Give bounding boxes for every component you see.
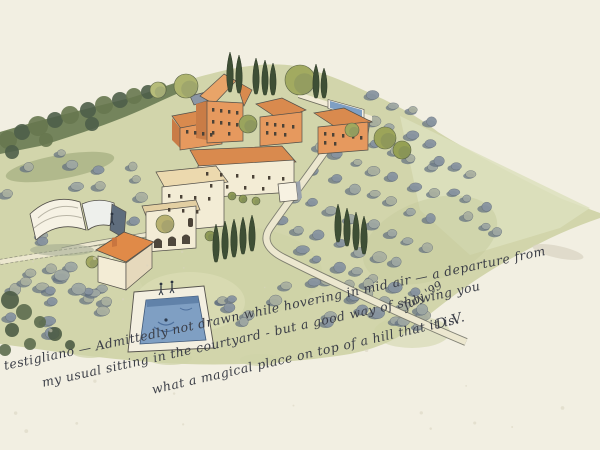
woods-tree bbox=[28, 116, 48, 136]
paper-speckle bbox=[511, 426, 513, 428]
chimney bbox=[112, 237, 117, 247]
woods-tree bbox=[85, 117, 99, 131]
window bbox=[282, 124, 284, 128]
tall-house-wall-shaded bbox=[196, 101, 207, 140]
round-tree bbox=[228, 192, 236, 200]
paper-speckle bbox=[473, 421, 476, 424]
window bbox=[236, 174, 238, 178]
window bbox=[244, 186, 246, 190]
round-tree bbox=[239, 195, 247, 203]
arch-opening bbox=[168, 237, 176, 247]
paper-speckle bbox=[173, 392, 175, 394]
woods-tree bbox=[5, 145, 19, 159]
window bbox=[332, 133, 334, 137]
window bbox=[342, 134, 344, 138]
paper-speckle bbox=[365, 349, 368, 352]
round-tree bbox=[150, 82, 166, 98]
green-fade-blob bbox=[240, 354, 280, 366]
window bbox=[180, 195, 182, 199]
woods-tree bbox=[47, 112, 63, 128]
paper-speckle bbox=[32, 260, 34, 262]
round-tree bbox=[174, 74, 198, 98]
paper-speckle bbox=[413, 305, 416, 308]
window bbox=[202, 132, 204, 136]
paper-speckle bbox=[93, 379, 96, 382]
window bbox=[228, 110, 230, 114]
window bbox=[284, 133, 286, 137]
window bbox=[194, 131, 196, 135]
bush bbox=[5, 323, 19, 337]
round-tree bbox=[156, 215, 174, 233]
paper-speckle bbox=[146, 264, 148, 266]
window bbox=[208, 197, 210, 201]
paper-speckle bbox=[320, 289, 322, 291]
barn-shadow bbox=[30, 244, 94, 256]
paper-speckle bbox=[49, 329, 52, 332]
paper-speckle bbox=[293, 405, 295, 407]
paper-speckle bbox=[93, 257, 96, 260]
artwork-canvas: testigliano — Admittedly not drawn while… bbox=[0, 0, 600, 450]
window bbox=[220, 109, 222, 113]
window bbox=[236, 123, 238, 127]
round-tree bbox=[252, 197, 260, 205]
window bbox=[226, 185, 228, 189]
paper-speckle bbox=[122, 298, 124, 300]
window bbox=[220, 173, 222, 177]
paper-speckle bbox=[24, 429, 28, 433]
window bbox=[196, 210, 198, 214]
window bbox=[206, 172, 208, 176]
swimmer bbox=[164, 318, 167, 321]
woods-tree bbox=[126, 88, 142, 104]
paper-speckle bbox=[14, 411, 17, 414]
window bbox=[292, 125, 294, 129]
window bbox=[228, 122, 230, 126]
woods-tree bbox=[80, 102, 96, 118]
window bbox=[266, 122, 268, 126]
bush bbox=[1, 291, 19, 309]
paper-speckle bbox=[181, 251, 183, 253]
green-fade-blob bbox=[148, 351, 192, 365]
window bbox=[194, 196, 196, 200]
woods-tree bbox=[61, 106, 79, 124]
round-tree bbox=[239, 115, 257, 133]
window bbox=[252, 175, 254, 179]
woods-tree bbox=[39, 133, 53, 147]
door bbox=[188, 218, 193, 227]
window bbox=[228, 132, 230, 136]
round-tree bbox=[345, 123, 359, 137]
window bbox=[324, 132, 326, 136]
paper-speckle bbox=[106, 367, 109, 370]
house-wall bbox=[260, 112, 302, 146]
paper-speckle bbox=[429, 427, 432, 430]
window bbox=[210, 184, 212, 188]
window bbox=[324, 141, 326, 145]
window bbox=[274, 123, 276, 127]
window bbox=[236, 111, 238, 115]
window bbox=[274, 132, 276, 136]
bush bbox=[34, 316, 46, 328]
window bbox=[266, 131, 268, 135]
woods-tree bbox=[95, 96, 113, 114]
paper-speckle bbox=[465, 385, 467, 387]
window bbox=[210, 133, 212, 137]
paper-speckle bbox=[183, 267, 185, 269]
bush bbox=[65, 340, 75, 350]
green-fade-blob bbox=[72, 346, 108, 358]
round-tree bbox=[374, 127, 396, 149]
window bbox=[182, 209, 184, 213]
round-tree bbox=[393, 141, 411, 159]
round-tree bbox=[285, 65, 315, 95]
paper-speckle bbox=[75, 422, 78, 425]
road-shed bbox=[278, 182, 298, 202]
window bbox=[168, 208, 170, 212]
bush bbox=[24, 338, 36, 350]
paper-speckle bbox=[229, 368, 233, 372]
window bbox=[360, 136, 362, 140]
paper-speckle bbox=[182, 423, 184, 425]
watercolor-illustration bbox=[0, 0, 600, 450]
window bbox=[282, 177, 284, 181]
paper-speckle bbox=[264, 287, 266, 289]
window bbox=[268, 176, 270, 180]
window bbox=[212, 108, 214, 112]
arch-opening bbox=[182, 235, 190, 245]
arch-opening bbox=[154, 239, 162, 249]
window bbox=[334, 142, 336, 146]
window bbox=[262, 187, 264, 191]
woods-tree bbox=[14, 124, 30, 140]
window bbox=[212, 120, 214, 124]
paper-speckle bbox=[561, 406, 565, 410]
window bbox=[220, 121, 222, 125]
bush bbox=[16, 304, 32, 320]
window bbox=[168, 194, 170, 198]
window bbox=[186, 130, 188, 134]
woods-tree bbox=[112, 92, 128, 108]
paper-speckle bbox=[420, 411, 423, 414]
